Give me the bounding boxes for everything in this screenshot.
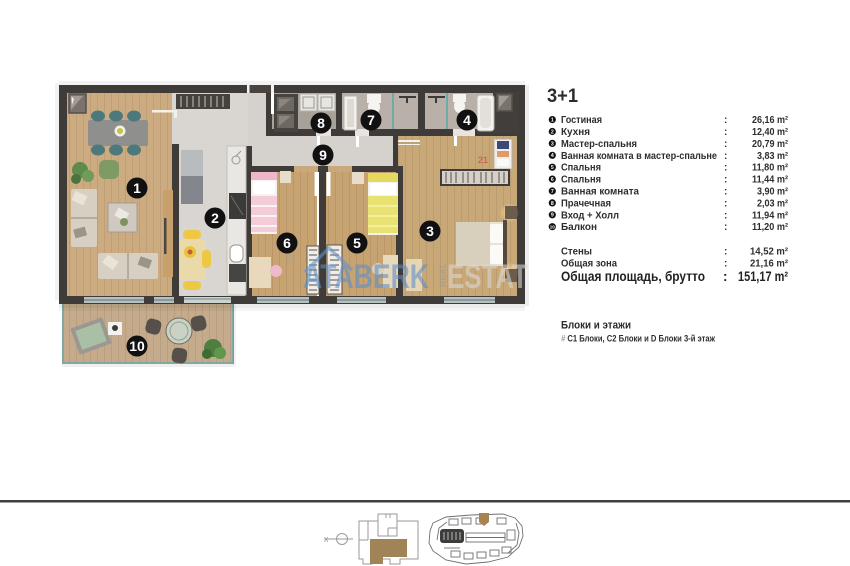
svg-text:2,03 m²: 2,03 m² bbox=[757, 198, 789, 209]
svg-text:6: 6 bbox=[283, 235, 291, 251]
svg-text::: : bbox=[724, 127, 727, 138]
svg-text:21: 21 bbox=[478, 155, 488, 165]
svg-text:5: 5 bbox=[551, 165, 554, 171]
svg-text:6: 6 bbox=[551, 177, 554, 183]
svg-text::: : bbox=[724, 175, 727, 186]
svg-text:1: 1 bbox=[133, 180, 141, 196]
svg-text:11,94 m²: 11,94 m² bbox=[752, 210, 789, 221]
svg-text:20,79 m²: 20,79 m² bbox=[752, 139, 789, 150]
svg-text:9: 9 bbox=[319, 147, 327, 163]
svg-text:11,44 m²: 11,44 m² bbox=[752, 175, 789, 186]
svg-text::: : bbox=[724, 139, 727, 150]
svg-text:1: 1 bbox=[551, 118, 554, 124]
svg-text:Блоки и этажи: Блоки и этажи bbox=[561, 320, 631, 332]
svg-text::: : bbox=[724, 163, 727, 174]
svg-text::: : bbox=[724, 198, 727, 209]
svg-text:3,83 m²: 3,83 m² bbox=[757, 151, 789, 162]
svg-text:5: 5 bbox=[353, 235, 361, 251]
svg-text:21: 21 bbox=[285, 253, 296, 263]
svg-text:11,80 m²: 11,80 m² bbox=[752, 163, 789, 174]
svg-text::: : bbox=[724, 115, 727, 126]
svg-text:2: 2 bbox=[211, 210, 219, 226]
svg-text:Мастер-спальня: Мастер-спальня bbox=[561, 139, 637, 150]
svg-text:9: 9 bbox=[551, 213, 554, 219]
svg-text:Общая площадь, брутто: Общая площадь, брутто bbox=[561, 269, 705, 284]
svg-text:12,40 m²: 12,40 m² bbox=[752, 127, 789, 138]
svg-text:Спальня: Спальня bbox=[561, 163, 601, 174]
svg-text:10: 10 bbox=[129, 338, 145, 354]
svg-text:8: 8 bbox=[551, 201, 554, 207]
svg-text:7: 7 bbox=[551, 189, 554, 195]
svg-text:ESTAT: ESTAT bbox=[447, 258, 528, 296]
svg-text:3,90 m²: 3,90 m² bbox=[757, 187, 789, 198]
svg-text:26,16 m²: 26,16 m² bbox=[752, 115, 789, 126]
svg-text:11,20 m²: 11,20 m² bbox=[752, 222, 789, 233]
svg-text:4: 4 bbox=[551, 153, 554, 159]
svg-text:Общая зона: Общая зона bbox=[561, 257, 617, 269]
svg-text:3+1: 3+1 bbox=[547, 86, 578, 107]
svg-text:10: 10 bbox=[550, 225, 556, 230]
svg-text:К: К bbox=[324, 535, 329, 544]
svg-text:14,52 m²: 14,52 m² bbox=[750, 246, 789, 257]
svg-text:Ванная комната в мастер-спальн: Ванная комната в мастер-спальне bbox=[561, 151, 717, 162]
svg-text:Вход + Холл: Вход + Холл bbox=[561, 210, 619, 221]
svg-text:Прачечная: Прачечная bbox=[561, 198, 611, 209]
svg-text:Гостиная: Гостиная bbox=[561, 115, 602, 126]
svg-text:Ванная комната: Ванная комната bbox=[561, 187, 639, 198]
svg-text:2: 2 bbox=[551, 129, 554, 135]
svg-text:21,16 m²: 21,16 m² bbox=[750, 258, 789, 269]
svg-text:Стены: Стены bbox=[561, 246, 592, 257]
svg-text::: : bbox=[724, 246, 727, 257]
svg-text:4: 4 bbox=[463, 112, 471, 128]
svg-text:Кухня: Кухня bbox=[561, 127, 590, 138]
svg-text:3: 3 bbox=[426, 223, 434, 239]
svg-text:ATABERK: ATABERK bbox=[303, 258, 429, 296]
svg-text::: : bbox=[724, 258, 727, 269]
svg-text:Балкон: Балкон bbox=[561, 222, 597, 233]
svg-text:7: 7 bbox=[367, 112, 375, 128]
svg-text:8: 8 bbox=[317, 115, 325, 131]
svg-text::: : bbox=[724, 210, 727, 221]
svg-text:Спальня: Спальня bbox=[561, 175, 601, 186]
svg-text::: : bbox=[723, 269, 728, 284]
svg-text::: : bbox=[724, 187, 727, 198]
svg-text:151,17 m²: 151,17 m² bbox=[738, 269, 788, 284]
svg-text::: : bbox=[724, 222, 727, 233]
svg-text:# C1 Блоки, C2 Блоки и D Блоки: # C1 Блоки, C2 Блоки и D Блоки 3-й этаж bbox=[561, 334, 716, 344]
svg-text:3: 3 bbox=[551, 141, 554, 147]
svg-text::: : bbox=[724, 151, 727, 162]
